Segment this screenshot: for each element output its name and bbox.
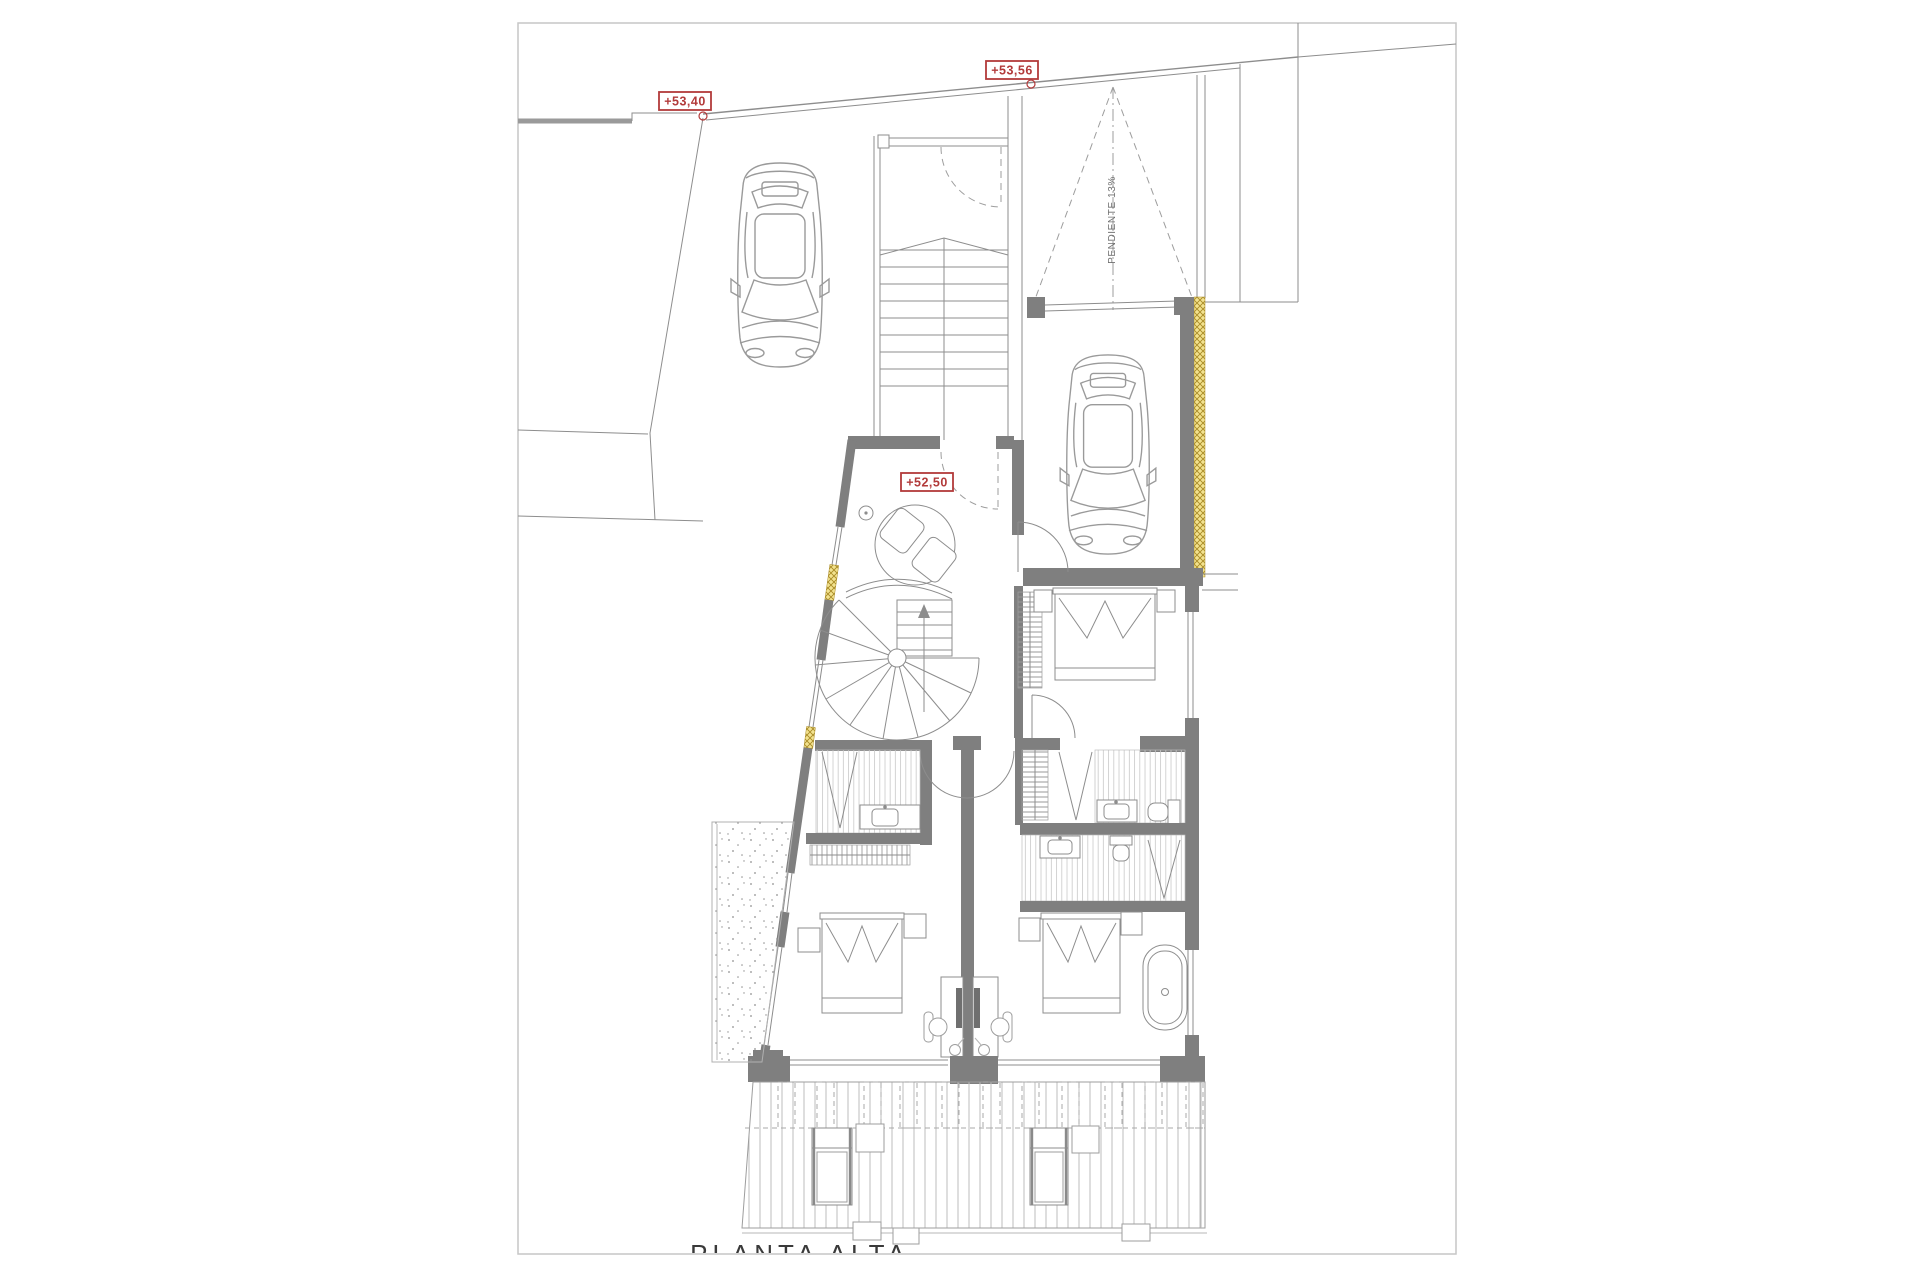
entry-landing: [848, 436, 1014, 585]
bedroom-door: [1032, 695, 1075, 738]
elevation-value: +52,50: [906, 476, 948, 490]
bed: [798, 913, 926, 1013]
garage-door-swing: [1018, 522, 1068, 572]
bed: [1019, 912, 1142, 1013]
round-table-and-chairs: [875, 505, 958, 585]
sink-upper-right: [1097, 800, 1137, 822]
side-table-1: [856, 1124, 884, 1152]
window-right-1: [1188, 612, 1193, 718]
deck-step-1: [853, 1222, 881, 1240]
garage: [1012, 297, 1238, 590]
toilet-lower-right: [1110, 836, 1132, 861]
closet-upper-right: [1059, 752, 1092, 820]
deck-boards: [742, 1082, 1205, 1228]
insulation-left-1: [825, 564, 839, 600]
window: [832, 527, 842, 565]
exterior-staircase: [874, 96, 1022, 440]
spiral-staircase: [815, 579, 979, 740]
elevation-marker-ramp-top: +53,56: [986, 61, 1038, 79]
side-table-2: [1072, 1126, 1099, 1153]
garage-car: [1060, 355, 1156, 554]
elevation-value: +53,56: [991, 64, 1033, 78]
bedroom-bottom-left: [798, 913, 964, 1057]
access-ramp: PENDIENTE 13%: [1030, 75, 1205, 313]
floor-plan-svg: PENDIENTE 13%: [0, 0, 1920, 1280]
elevation-marker-parking: +53,40: [659, 92, 711, 110]
elevation-value: +53,40: [664, 95, 706, 109]
deck-step-3: [1122, 1224, 1150, 1241]
toilet-upper-right: [1148, 800, 1180, 824]
vanity-lower-right: [1040, 836, 1080, 858]
terrace: [742, 1056, 1207, 1244]
elevation-marker-landing: +52,50: [901, 473, 953, 491]
window-right-2: [1188, 950, 1193, 1035]
stair-entry-door: [941, 147, 1001, 207]
desk-left: [924, 977, 964, 1057]
elevation-markers: +53,40 +53,56 +52,50: [659, 61, 1038, 491]
bedroom-bottom-right: [973, 912, 1199, 1065]
stair-treads: [880, 238, 1008, 440]
insulation-left-2: [804, 726, 816, 748]
drawing-sheet: PENDIENTE 13%: [0, 0, 1920, 1280]
desk-right: [973, 977, 1012, 1057]
parking-car: [731, 163, 829, 367]
bathrooms: [806, 750, 1188, 912]
sun-lounger-2: [1030, 1128, 1068, 1205]
sun-lounger-1: [812, 1128, 852, 1205]
bathtub: [1143, 945, 1187, 1030]
benchmark-point-ramp: [1027, 80, 1035, 88]
ramp-slope-label: PENDIENTE 13%: [1107, 176, 1118, 264]
bed: [1034, 588, 1175, 680]
insulation-right-wall: [1194, 297, 1205, 577]
sink-left: [860, 805, 920, 829]
